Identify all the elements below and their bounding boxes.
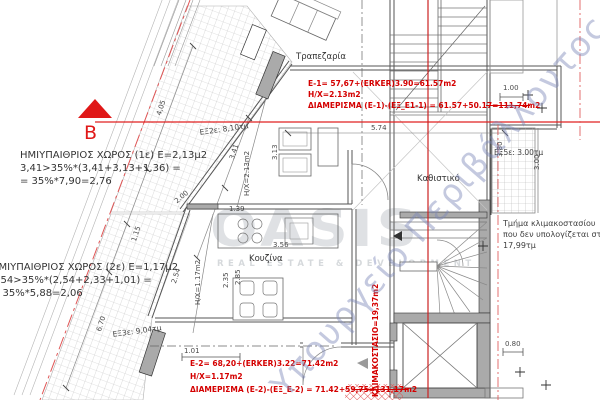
dim-5-74: 5.74 [371, 124, 387, 132]
apartment-2-line2: H/X=1.17m2 [190, 372, 243, 381]
semi-open-1-line2: 3,41>35%*(3,41+3,13+1,36) = [20, 162, 181, 175]
stair-note-line1: Τμήμα κλιμακοστασίου [503, 219, 596, 228]
semi-open-1-line3: = 35%*7,90=2,76 [20, 175, 112, 188]
room-label-kitchen: Κουζίνα [249, 254, 283, 264]
dim-3-00: 3.00 [533, 154, 541, 170]
apartment-1-line2: H/X=2.13m2 [308, 90, 361, 99]
stair-note-line3: 17,99τμ [503, 241, 536, 250]
hx-1-label: Η/Χ=2.13m2 [243, 151, 251, 196]
room-label-dining: Τραπεζαρία [296, 52, 346, 62]
section-triangle [78, 99, 112, 118]
dim-3-13: 3.13 [271, 144, 279, 160]
section-marker-label: B [84, 122, 97, 144]
floorplan-screenshot: OASIS REAL ESTATE & DEVELOPMENT [0, 0, 600, 400]
apartment-1-line1: E-1= 57,67+(ERKER)3.90=61.57m2 [308, 79, 456, 88]
semi-open-1-line1: ΗΜΙΥΠΑΙΘΡΙΟΣ ΧΩΡΟΣ (1ε) Ε=2,13μ2 [20, 149, 207, 162]
dim-2-35: 2.35 [222, 272, 230, 288]
dim-0-80: 0.80 [505, 340, 521, 348]
semi-open-2-line3: = 35%*5,88=2,06 [0, 287, 83, 300]
semi-open-2-line2: 2,54>35%*(2,54+2,33+1,01) = [0, 274, 152, 287]
strikethrough-line [352, 389, 408, 390]
dim-3-56: 3.56 [273, 241, 289, 249]
dim-2-85: 2.85 [234, 269, 242, 285]
hx-2-label: Η/Χ=1.17m2 [194, 260, 202, 305]
stair-note-line2: που δεν υπολογίζεται στον συ [503, 230, 600, 239]
dim-1-39: 1.39 [229, 205, 245, 213]
dim-1-01: 1.01 [184, 347, 200, 355]
semi-open-2-line1: ΗΜΙΥΠΑΙΘΡΙΟΣ ΧΩΡΟΣ (2ε) Ε=1,17μ2 [0, 261, 178, 274]
